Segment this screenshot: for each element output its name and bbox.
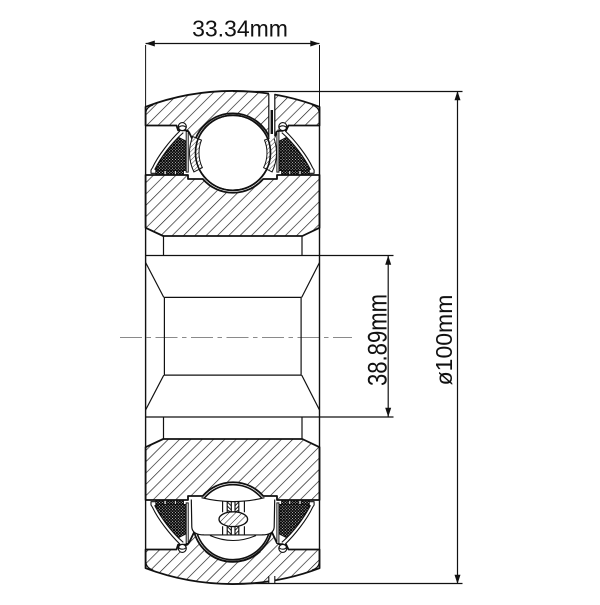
svg-text:ø100mm: ø100mm	[431, 295, 457, 386]
svg-text:33.34mm: 33.34mm	[192, 16, 288, 42]
svg-text:38.89mm: 38.89mm	[363, 294, 393, 386]
